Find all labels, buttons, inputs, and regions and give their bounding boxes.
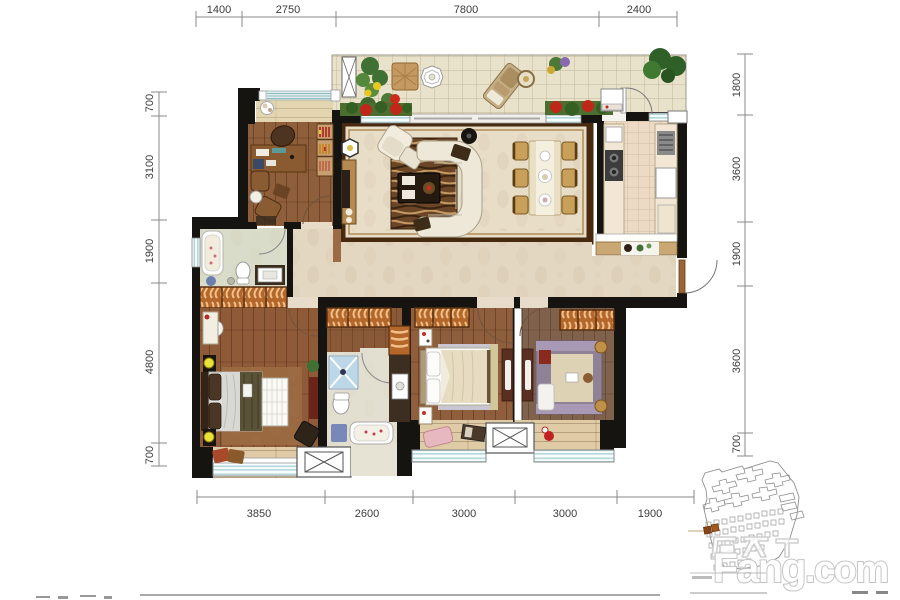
svg-text:7800: 7800 xyxy=(454,4,478,16)
svg-text:2400: 2400 xyxy=(627,4,651,16)
svg-text:1900: 1900 xyxy=(144,239,156,263)
svg-text:700: 700 xyxy=(731,435,743,453)
svg-text:3000: 3000 xyxy=(452,508,476,520)
svg-text:3600: 3600 xyxy=(731,349,743,373)
svg-text:3600: 3600 xyxy=(731,157,743,181)
svg-text:Fang.com: Fang.com xyxy=(713,545,888,591)
svg-text:3000: 3000 xyxy=(553,508,577,520)
svg-text:1400: 1400 xyxy=(207,4,231,16)
svg-text:3100: 3100 xyxy=(144,155,156,179)
svg-text:1900: 1900 xyxy=(638,508,662,520)
svg-text:4800: 4800 xyxy=(144,350,156,374)
svg-text:1800: 1800 xyxy=(731,73,743,97)
svg-text:2750: 2750 xyxy=(276,4,300,16)
svg-text:700: 700 xyxy=(144,94,156,112)
svg-text:3850: 3850 xyxy=(247,508,271,520)
svg-text:2600: 2600 xyxy=(355,508,379,520)
svg-text:1900: 1900 xyxy=(731,242,743,266)
svg-text:700: 700 xyxy=(144,446,156,464)
